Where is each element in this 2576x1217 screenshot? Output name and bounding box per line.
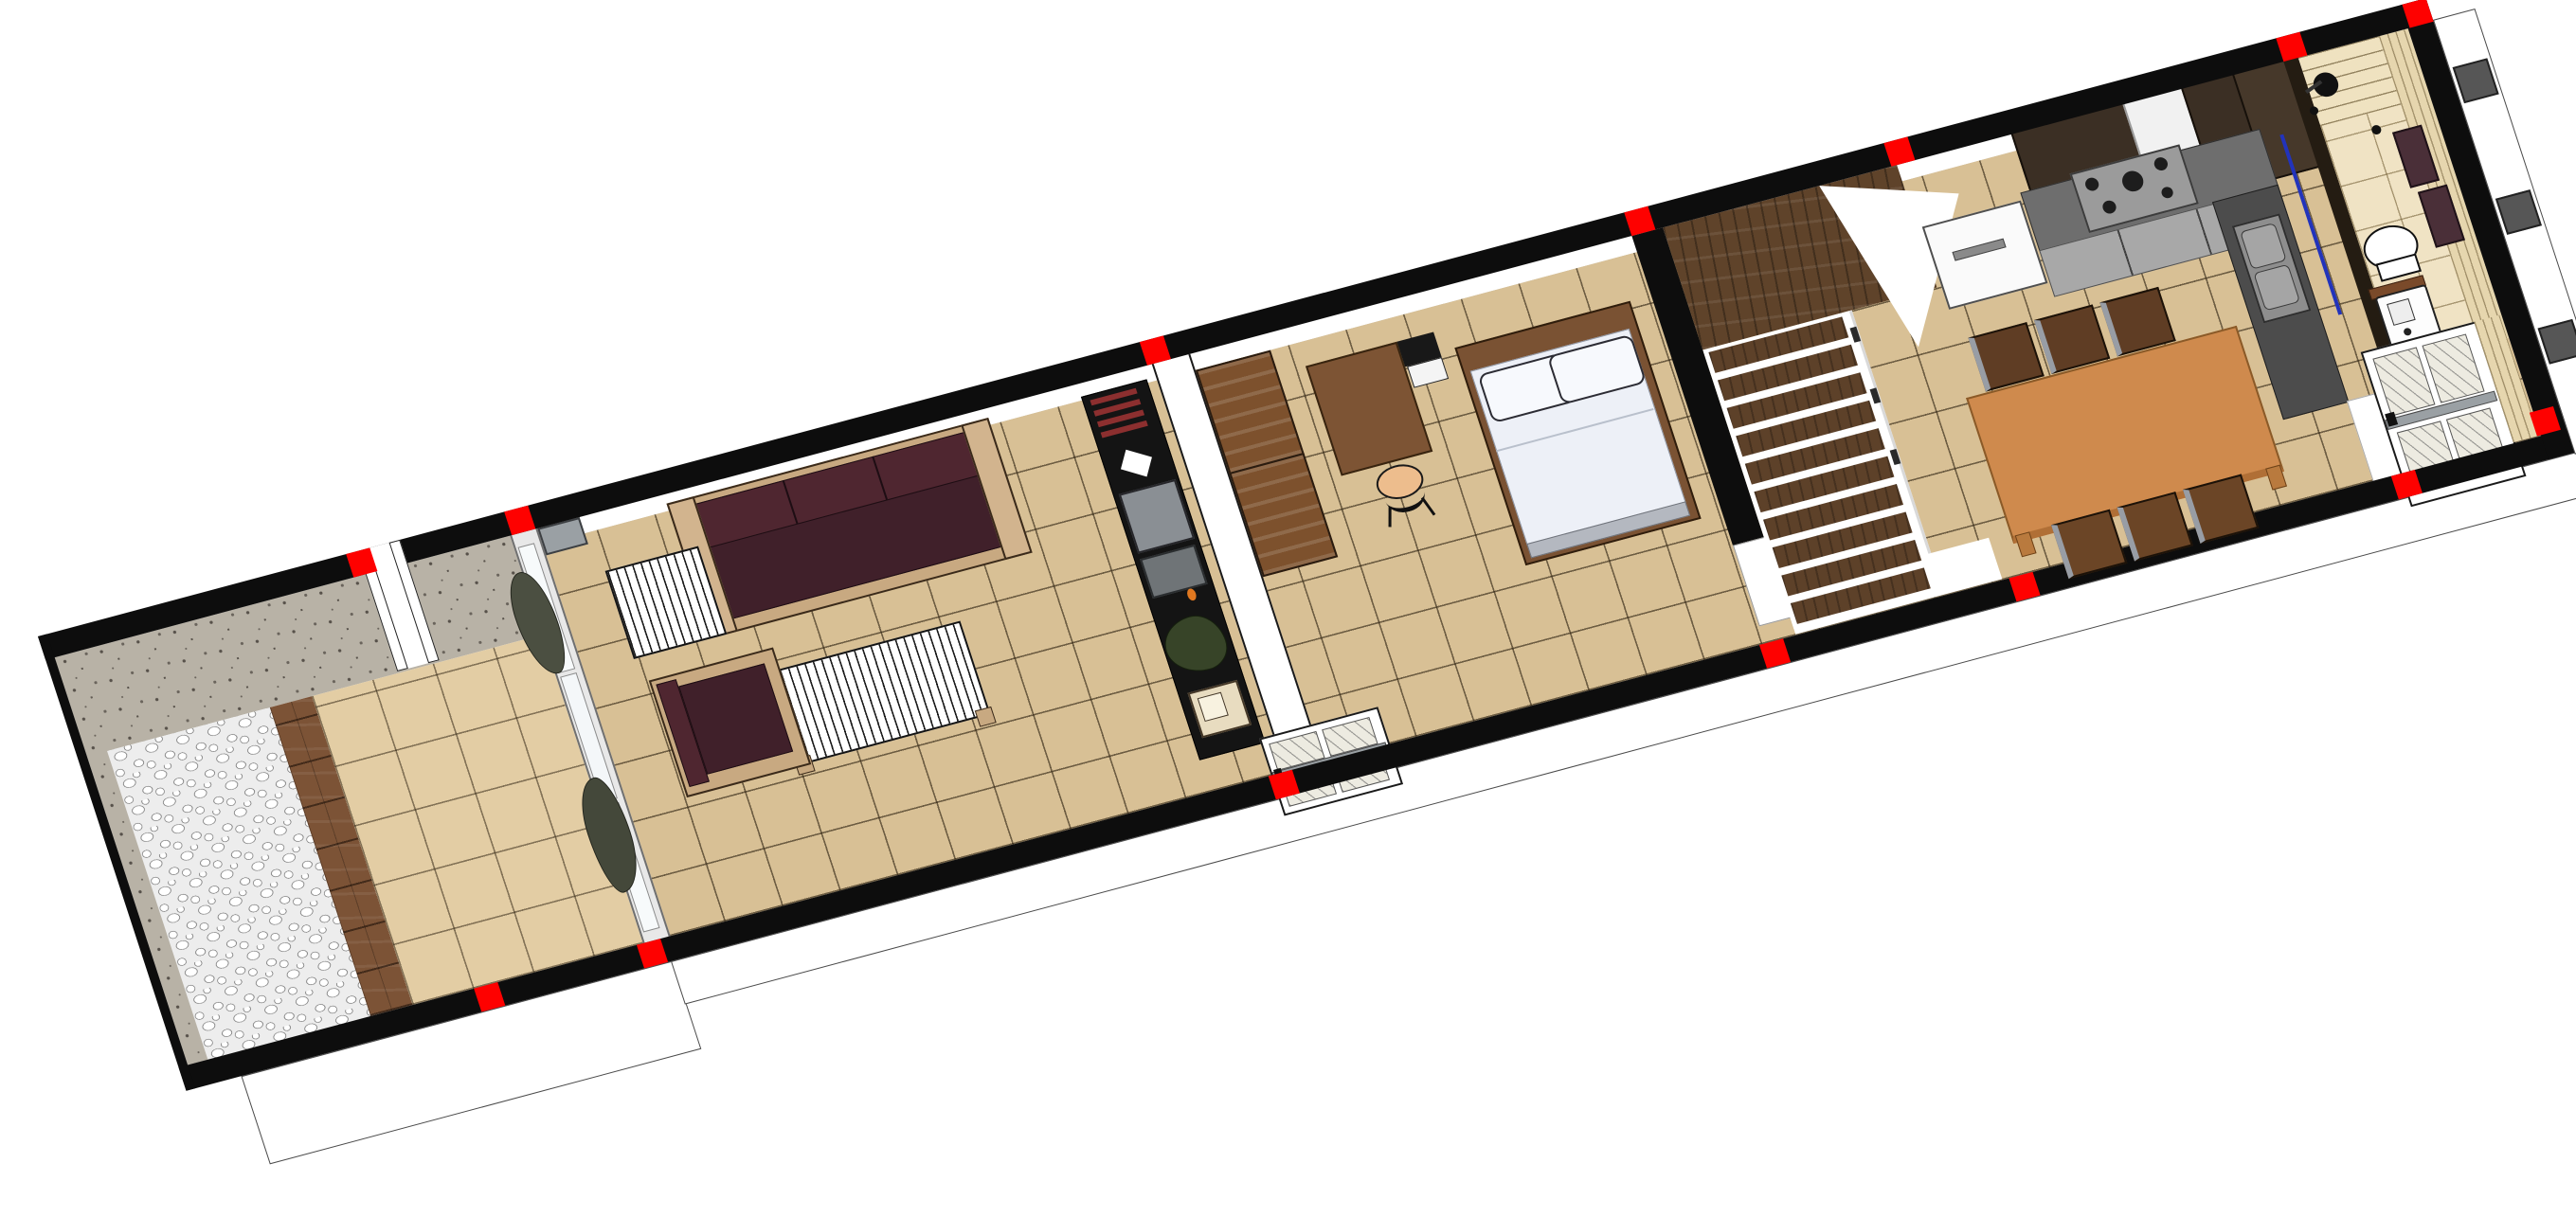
house-model (38, 0, 2574, 1091)
desk-chair-leg (1389, 507, 1392, 528)
floorplan-viewport (0, 0, 2576, 1217)
